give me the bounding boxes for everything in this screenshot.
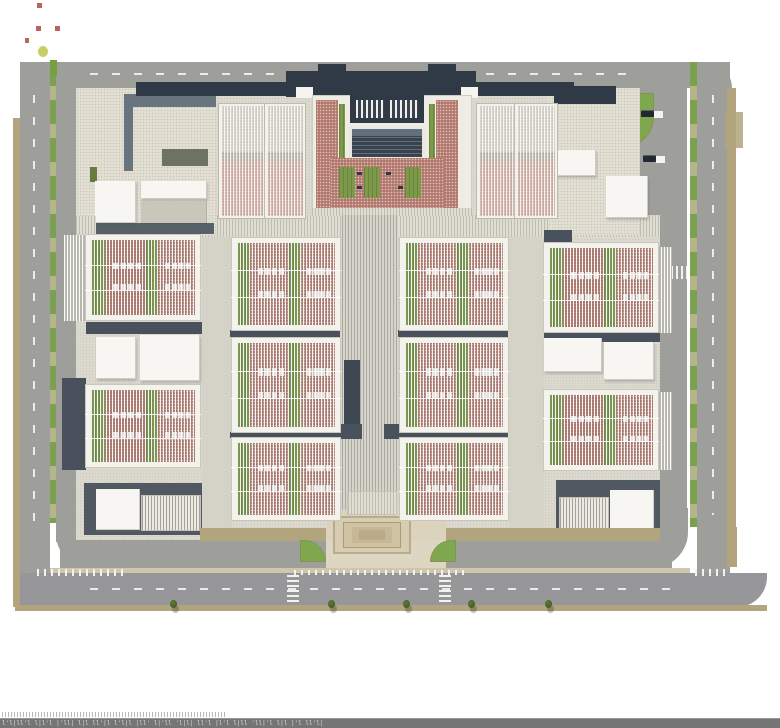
louver-overlay [549, 248, 653, 327]
trellis-building [515, 104, 557, 218]
lane-line [712, 95, 714, 515]
louver-overlay [91, 390, 195, 462]
gatehouse-tab [296, 87, 313, 98]
building-box [604, 342, 654, 380]
colonnade [390, 100, 418, 118]
tan-patch [725, 112, 743, 148]
building-box [606, 176, 648, 218]
roof-step [318, 64, 346, 76]
trellis-building [265, 104, 305, 218]
louver-rail [543, 274, 659, 275]
bench [357, 186, 362, 189]
block-r3c3 [400, 438, 508, 520]
louver-rail [543, 441, 659, 442]
roof-slab [398, 330, 508, 337]
lane-line [33, 95, 35, 535]
bench [398, 186, 403, 189]
louver-canopy [658, 247, 672, 333]
sidewalk-left [13, 118, 20, 607]
louver-rail [399, 398, 509, 399]
tree-yellow [38, 46, 48, 57]
building-box [141, 181, 207, 199]
crosswalk [287, 575, 299, 605]
path-column-east [510, 237, 544, 529]
louver-overlay [237, 343, 335, 427]
louver-rail [85, 414, 201, 415]
louver-rail [399, 270, 509, 271]
block-r2c4 [544, 390, 658, 470]
building-box [96, 489, 140, 530]
courtyard [237, 243, 335, 325]
legend-marker [36, 26, 41, 31]
building-box [95, 181, 136, 223]
render-status-bar: l'l|ll'l l|l'l |'ll| l|l ll'|l l'l|l |ll… [0, 718, 780, 728]
spine-bridge [338, 424, 362, 439]
sidewalk-bottom [15, 605, 767, 611]
median-right [690, 62, 697, 527]
roof-dark [136, 82, 288, 96]
block-r2c3 [400, 338, 508, 432]
stop-ticks [695, 569, 729, 576]
building-box [140, 335, 200, 381]
louver-rail [399, 467, 509, 468]
tree [403, 600, 410, 608]
louver-overlay [405, 343, 503, 427]
planter [339, 167, 355, 198]
olive-roof [162, 149, 208, 166]
tree [170, 600, 177, 608]
block-r3c2 [232, 438, 340, 520]
roof-slab [86, 322, 202, 334]
road-left-outer [20, 62, 50, 607]
block-r1c1 [86, 235, 200, 320]
car [643, 155, 656, 162]
courtyard [91, 390, 195, 462]
tree [468, 600, 475, 608]
louver-rail [231, 467, 341, 468]
louver-rail [85, 265, 201, 266]
courtyard [549, 395, 653, 465]
crosswalk [439, 575, 451, 605]
louver-overlay [91, 240, 195, 315]
tree [328, 600, 335, 608]
building-box [141, 201, 207, 224]
courtyard [237, 443, 335, 515]
louver-rail [231, 297, 341, 298]
entry-steps [76, 216, 96, 235]
louver-rail [85, 438, 201, 439]
building-box [96, 337, 136, 379]
lane-line [90, 588, 670, 590]
courtyard [405, 343, 503, 427]
building-box [544, 338, 602, 372]
louver-canopy [658, 392, 672, 470]
louver-overlay [549, 395, 653, 465]
courtyard [91, 240, 195, 315]
louver-rail [399, 297, 509, 298]
courtyard [549, 248, 653, 327]
trellis-building [477, 104, 517, 218]
louver-overlay [237, 243, 335, 325]
courtyard [405, 443, 503, 515]
car [641, 110, 654, 117]
grille-roof [142, 496, 200, 530]
trellis-building [219, 104, 265, 218]
road-bottom-inner-west [60, 540, 326, 568]
grille-roof [560, 498, 608, 528]
bench [386, 172, 391, 175]
parking-ticks [294, 570, 464, 575]
hedge [90, 167, 97, 182]
site-plan-render: l'l|ll'l l|l'l |'ll| l|l ll'|l l'l|l |ll… [0, 0, 780, 728]
roof-dark [554, 86, 616, 104]
dark-walk [96, 223, 214, 234]
building-box [552, 150, 596, 176]
road-bottom-outer [15, 573, 767, 607]
louver-rail [231, 371, 341, 372]
louver-rail [543, 418, 659, 419]
footer-smudge [2, 712, 227, 717]
sidewalk-right [727, 88, 736, 567]
louver-rail [543, 300, 659, 301]
courtyard [405, 243, 503, 325]
louver-rail [231, 491, 341, 492]
tan-patch [727, 527, 737, 567]
entry-steps [348, 492, 396, 514]
bench [357, 172, 362, 175]
plaza-ring [359, 530, 385, 540]
spine-core [344, 360, 360, 426]
tree [545, 600, 552, 608]
roof-slab [230, 330, 340, 337]
planter [405, 167, 421, 198]
louver-canopy [64, 235, 86, 321]
louver-rail [399, 491, 509, 492]
render-watermark-text: l'l|ll'l l|l'l |'ll| l|l ll'|l l'l|l |ll… [0, 719, 780, 728]
louver-overlay [405, 443, 503, 515]
louver-rail [231, 398, 341, 399]
stop-ticks [37, 569, 125, 576]
parking-pad [654, 111, 663, 118]
parking-pad [656, 156, 665, 163]
courtyard [237, 343, 335, 427]
legend-marker [25, 38, 29, 43]
atrium-clerestory [352, 129, 422, 136]
tower-dark [62, 378, 86, 470]
roof-slab [544, 230, 572, 243]
planter [364, 167, 380, 198]
block-r1c4 [544, 243, 658, 332]
legend-marker [37, 3, 42, 8]
colonnade [356, 100, 384, 118]
louver-rail [399, 371, 509, 372]
road-bottom-inner-east [446, 540, 672, 568]
louver-overlay [405, 243, 503, 325]
shadow-band [124, 107, 133, 171]
block-r1c2 [232, 238, 340, 330]
path-column-west [202, 237, 232, 529]
median-tree [50, 60, 57, 76]
louver-rail [85, 290, 201, 291]
block-r1c3 [400, 238, 508, 330]
block-r2c2 [232, 338, 340, 432]
roof-step [428, 64, 456, 76]
louver-rail [231, 270, 341, 271]
block-r2c1 [86, 385, 200, 467]
legend-marker [55, 26, 60, 31]
louver-overlay [237, 443, 335, 515]
